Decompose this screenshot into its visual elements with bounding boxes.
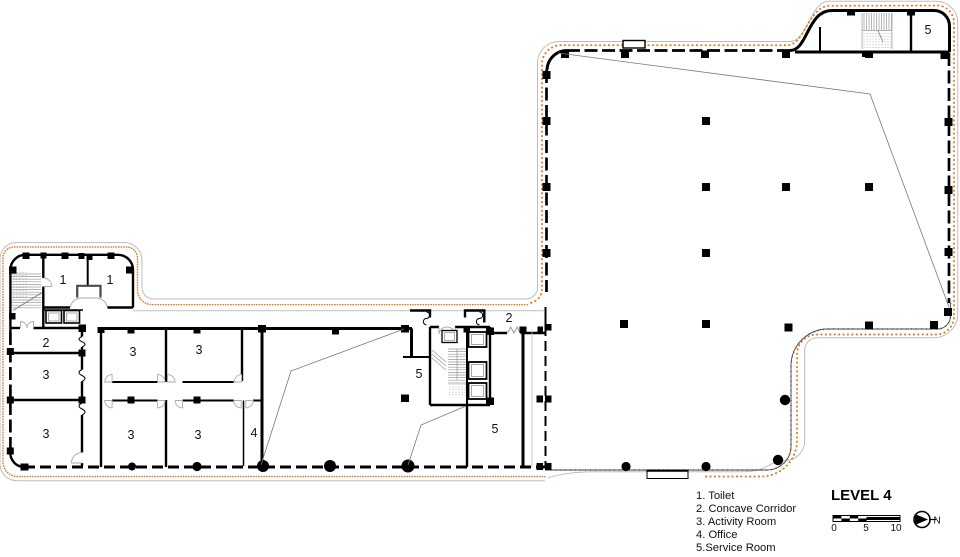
svg-text:2: 2 (43, 336, 50, 350)
svg-text:10: 10 (890, 523, 902, 534)
svg-text:0: 0 (831, 523, 837, 534)
svg-text:2. Concave Corridor: 2. Concave Corridor (696, 503, 796, 515)
svg-text:3. Activity Room: 3. Activity Room (696, 516, 776, 528)
svg-text:3: 3 (130, 345, 137, 359)
svg-text:5: 5 (925, 23, 932, 37)
svg-text:4. Office: 4. Office (696, 529, 737, 541)
svg-text:N: N (934, 516, 941, 527)
svg-text:5: 5 (492, 422, 499, 436)
svg-text:1: 1 (107, 273, 114, 287)
svg-text:3: 3 (196, 343, 203, 357)
svg-text:1. Toilet: 1. Toilet (696, 490, 735, 502)
svg-text:LEVEL 4: LEVEL 4 (831, 487, 892, 504)
svg-text:3: 3 (43, 427, 50, 441)
svg-text:4: 4 (251, 426, 258, 440)
svg-text:5.Service Room: 5.Service Room (696, 542, 776, 554)
svg-text:5: 5 (416, 367, 423, 381)
svg-text:5: 5 (863, 523, 869, 534)
svg-text:2: 2 (506, 311, 513, 325)
svg-text:3: 3 (195, 428, 202, 442)
svg-text:3: 3 (128, 428, 135, 442)
svg-text:1: 1 (60, 273, 67, 287)
svg-text:3: 3 (43, 368, 50, 382)
